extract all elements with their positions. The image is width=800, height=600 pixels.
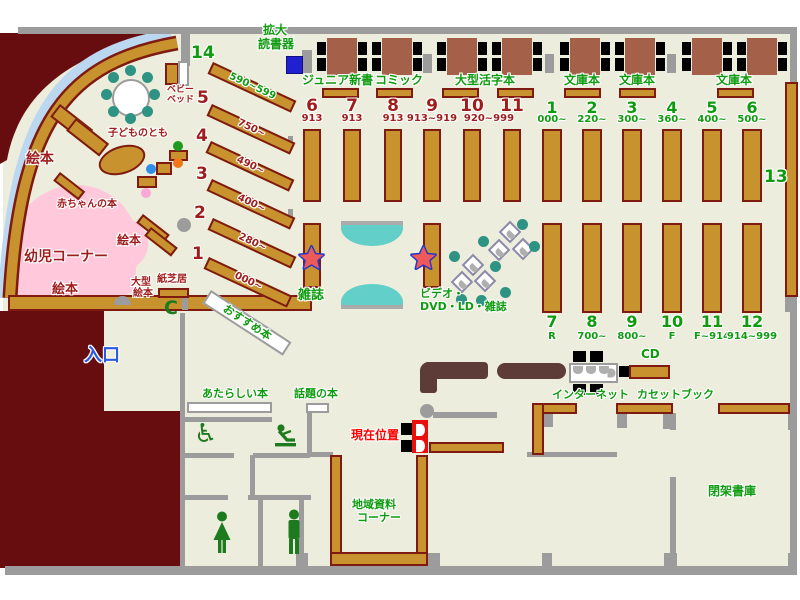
right-shelf-bottom xyxy=(662,223,682,313)
carrel-chair xyxy=(500,287,511,298)
reading-table xyxy=(327,38,357,75)
shelf-13-label: 13 xyxy=(764,169,788,187)
junior-shinsho-label: ジュニア新書 xyxy=(302,74,373,87)
wheelchair-icon: ♿ xyxy=(194,419,217,449)
ogata-ehon-label-1: 大型 xyxy=(131,278,151,289)
carrel-seat-mark xyxy=(518,247,529,258)
video-label-2: DVD・LD・雑誌 xyxy=(420,301,507,313)
round-table-chair xyxy=(108,72,119,83)
right-shelf-bottom xyxy=(702,223,722,313)
internet-monitor-4 xyxy=(608,369,616,378)
new-books-shelf xyxy=(187,402,272,413)
internet-chair-1 xyxy=(573,351,586,362)
wall xyxy=(785,297,797,312)
cassette-shelf-2 xyxy=(718,403,790,414)
marker-seat-1 xyxy=(416,424,425,436)
reading-table xyxy=(692,38,722,75)
wall xyxy=(180,313,185,567)
carrel-chair xyxy=(449,251,460,262)
reading-table xyxy=(502,38,532,75)
cd-shelf xyxy=(629,365,670,379)
table-chair xyxy=(560,42,569,55)
center-shelf xyxy=(343,129,361,202)
new-books-label: あたらしい本 xyxy=(202,388,268,400)
center-shelf xyxy=(463,129,481,202)
kids-step-2 xyxy=(156,162,172,175)
internet-label: インターネット xyxy=(552,389,629,401)
center-shelf-number: 10 xyxy=(452,98,492,116)
internet-monitor-1 xyxy=(573,366,583,374)
right-shelf-bottom xyxy=(622,223,642,313)
table-chair xyxy=(656,42,665,55)
play-dot-pink xyxy=(141,188,151,198)
wall xyxy=(788,413,797,430)
round-table-chair xyxy=(125,65,136,76)
wall xyxy=(788,553,797,566)
table-chair xyxy=(737,42,746,55)
table-chair xyxy=(682,42,691,55)
play-dot-blue xyxy=(146,164,156,174)
right-shelf-bottom xyxy=(582,223,602,313)
table-chair xyxy=(492,42,501,55)
local-corner-label-2: コーナー xyxy=(357,512,401,524)
bunko-label: 文庫本 xyxy=(564,74,600,87)
star-marker-right xyxy=(409,244,438,277)
ehon-label-1: 絵本 xyxy=(26,152,54,167)
table-chair xyxy=(723,42,732,55)
right-shelf-bottom xyxy=(542,223,562,313)
round-table-chair xyxy=(125,113,136,124)
magnifier-reader-label-1: 拡大 xyxy=(263,24,287,37)
cassette-shelf-1 xyxy=(616,403,673,414)
kids-shelf-number: 2 xyxy=(194,205,206,223)
local-corner-shelf-right xyxy=(416,455,428,566)
pillar-1 xyxy=(177,218,191,232)
magnifier-reader-label-2: 読書器 xyxy=(258,38,294,51)
toddler-corner-label: 幼児コーナー xyxy=(24,250,108,265)
right-shelf-bottom xyxy=(742,223,762,313)
genre-shelf xyxy=(619,88,656,98)
wall xyxy=(617,413,627,428)
center-shelf-number: 11 xyxy=(492,98,532,116)
local-corner-shelf-left xyxy=(330,455,342,566)
wall xyxy=(5,566,797,575)
carrel-chair xyxy=(490,261,501,272)
table-chair xyxy=(358,42,367,55)
table-chair xyxy=(723,58,732,71)
table-chair xyxy=(560,58,569,71)
large-print-label: 大型活字本 xyxy=(455,74,515,87)
men-toilet-icon xyxy=(284,509,304,559)
L-shelf-leg xyxy=(532,403,544,455)
table-chair xyxy=(682,58,691,71)
topic-books-shelf xyxy=(306,403,329,413)
ogata-ehon-label-2: 絵本 xyxy=(133,289,153,300)
cassette-label: カセットブック xyxy=(637,389,714,401)
current-position-label: 現在位置 xyxy=(351,429,399,442)
reading-table xyxy=(747,38,777,75)
kids-shelf-number: 1 xyxy=(192,246,204,264)
service-counter-L-leg xyxy=(420,362,437,393)
service-counter-2 xyxy=(497,363,566,379)
reading-table xyxy=(382,38,412,75)
wall xyxy=(433,412,497,418)
wall xyxy=(250,455,255,497)
wall xyxy=(184,453,234,458)
table-chair xyxy=(601,58,610,71)
table-chair xyxy=(437,58,446,71)
table-chair xyxy=(601,42,610,55)
table-chair xyxy=(317,58,326,71)
wall xyxy=(670,477,676,557)
video-label-1: ビデオ・ xyxy=(420,288,464,300)
kids-shelf-number: 4 xyxy=(196,128,208,146)
library-floor-map: ♿ C 拡大 読書器 ジュニア新書 コミック 大型活字本 雑誌 ビデオ・ DVD… xyxy=(0,0,800,600)
right-shelf-bottom-number: 11 xyxy=(692,314,732,331)
local-corner-label-1: 地域資料 xyxy=(352,499,396,511)
baby-change-icon xyxy=(274,423,298,455)
wall xyxy=(667,54,676,73)
marker-chair-2 xyxy=(401,440,412,452)
closed-stacks-label: 閉架書庫 xyxy=(708,485,756,498)
magazine-label: 雑誌 xyxy=(298,289,324,303)
table-chair xyxy=(413,58,422,71)
table-chair xyxy=(437,42,446,55)
topic-books-label: 話題の本 xyxy=(294,388,338,400)
play-dot-green xyxy=(173,141,183,151)
wall xyxy=(18,27,797,34)
wall xyxy=(258,498,263,567)
kids-shelf-number: 3 xyxy=(196,166,208,184)
table-chair xyxy=(656,58,665,71)
right-shelf-top xyxy=(742,129,762,202)
table-chair xyxy=(478,42,487,55)
wall xyxy=(428,553,440,566)
reading-table xyxy=(447,38,477,75)
table-chair xyxy=(317,42,326,55)
women-toilet-icon xyxy=(211,511,233,559)
right-shelf-bottom-range: 914~999 xyxy=(724,332,780,343)
pillar-2 xyxy=(420,404,434,418)
bunko-label: 文庫本 xyxy=(619,74,655,87)
right-shelf-top-range: 500~ xyxy=(724,115,780,126)
reading-table xyxy=(625,38,655,75)
table-chair xyxy=(533,42,542,55)
star-icon xyxy=(412,246,436,268)
counter-side-shelf xyxy=(429,442,504,453)
center-shelf xyxy=(423,129,441,202)
right-shelf-top xyxy=(662,129,682,202)
carrel-chair xyxy=(529,241,540,252)
table-chair xyxy=(737,58,746,71)
internet-monitor-2 xyxy=(586,366,596,374)
right-shelf-top xyxy=(542,129,562,202)
right-shelf-top xyxy=(622,129,642,202)
marker-chair-1 xyxy=(401,423,412,435)
table-chair xyxy=(615,42,624,55)
local-corner-shelf-bottom xyxy=(330,552,428,566)
table-chair xyxy=(372,58,381,71)
magnifier-reader-unit xyxy=(286,56,303,74)
baby-bed xyxy=(178,61,189,86)
round-table-chair xyxy=(149,89,160,100)
num-14-label: 14 xyxy=(191,45,215,63)
table-chair xyxy=(615,58,624,71)
carrel-chair xyxy=(478,236,489,247)
right-shelf-top xyxy=(582,129,602,202)
play-dot-orange xyxy=(173,158,183,168)
phone-icon: C xyxy=(164,297,178,319)
center-shelf xyxy=(303,129,321,202)
round-table-chair xyxy=(108,106,119,117)
wall xyxy=(184,495,228,500)
genre-shelf xyxy=(564,88,601,98)
table-chair xyxy=(533,58,542,71)
wall xyxy=(664,553,677,566)
wall xyxy=(302,50,312,73)
marker-seat-2 xyxy=(416,440,425,452)
star-marker-left xyxy=(297,244,326,277)
carrel-seat-mark xyxy=(468,263,479,274)
kids-step-3 xyxy=(137,176,157,188)
baby-books-label: 赤ちゃんの本 xyxy=(57,200,117,211)
round-table-chair xyxy=(142,72,153,83)
carrel-seat-mark xyxy=(480,279,491,290)
wall xyxy=(542,553,552,566)
center-shelf xyxy=(503,129,521,202)
cd-label: CD xyxy=(641,348,660,361)
center-shelf xyxy=(384,129,402,202)
round-table-chair xyxy=(142,106,153,117)
comic-label: コミック xyxy=(375,74,423,87)
round-table-chair xyxy=(101,89,112,100)
table-chair xyxy=(358,58,367,71)
bunko-label: 文庫本 xyxy=(716,74,752,87)
baby-bed-label-2: ベッド xyxy=(167,96,194,105)
baby-bed-shelf xyxy=(165,63,179,85)
wall xyxy=(545,54,554,73)
table-chair xyxy=(478,58,487,71)
carrel-chair xyxy=(517,219,528,230)
table-chair xyxy=(492,58,501,71)
ehon-label-2: 絵本 xyxy=(117,234,141,247)
kids-shelf-number: 5 xyxy=(197,90,209,108)
shelf-13 xyxy=(785,82,798,297)
right-shelf-bottom-number: 10 xyxy=(652,314,692,331)
kamishibai-label: 紙芝居 xyxy=(157,275,187,286)
reading-table xyxy=(570,38,600,75)
wall xyxy=(543,413,553,427)
star-icon xyxy=(300,246,324,268)
carrel-seat-mark xyxy=(505,230,516,241)
table-chair xyxy=(778,42,787,55)
table-chair xyxy=(372,42,381,55)
genre-shelf xyxy=(717,88,754,98)
internet-side-unit xyxy=(619,366,629,377)
carrel-seat-mark xyxy=(494,248,505,259)
entrance-label: 入口 xyxy=(84,347,120,366)
wall xyxy=(423,54,432,73)
table-chair xyxy=(413,42,422,55)
wall xyxy=(663,413,675,429)
right-shelf-bottom-number: 9 xyxy=(612,314,652,331)
ehon-label-3: 絵本 xyxy=(52,283,78,297)
right-shelf-bottom-number: 12 xyxy=(732,314,772,331)
right-shelf-bottom-number: 7 xyxy=(532,314,572,331)
internet-chair-2 xyxy=(590,351,603,362)
wall xyxy=(182,296,188,310)
table-chair xyxy=(778,58,787,71)
right-shelf-top xyxy=(702,129,722,202)
wall xyxy=(307,410,312,457)
right-shelf-bottom-number: 8 xyxy=(572,314,612,331)
kodomo-no-tomo-label: 子どものとも xyxy=(108,129,168,140)
maroon-block-left2 xyxy=(103,411,181,568)
